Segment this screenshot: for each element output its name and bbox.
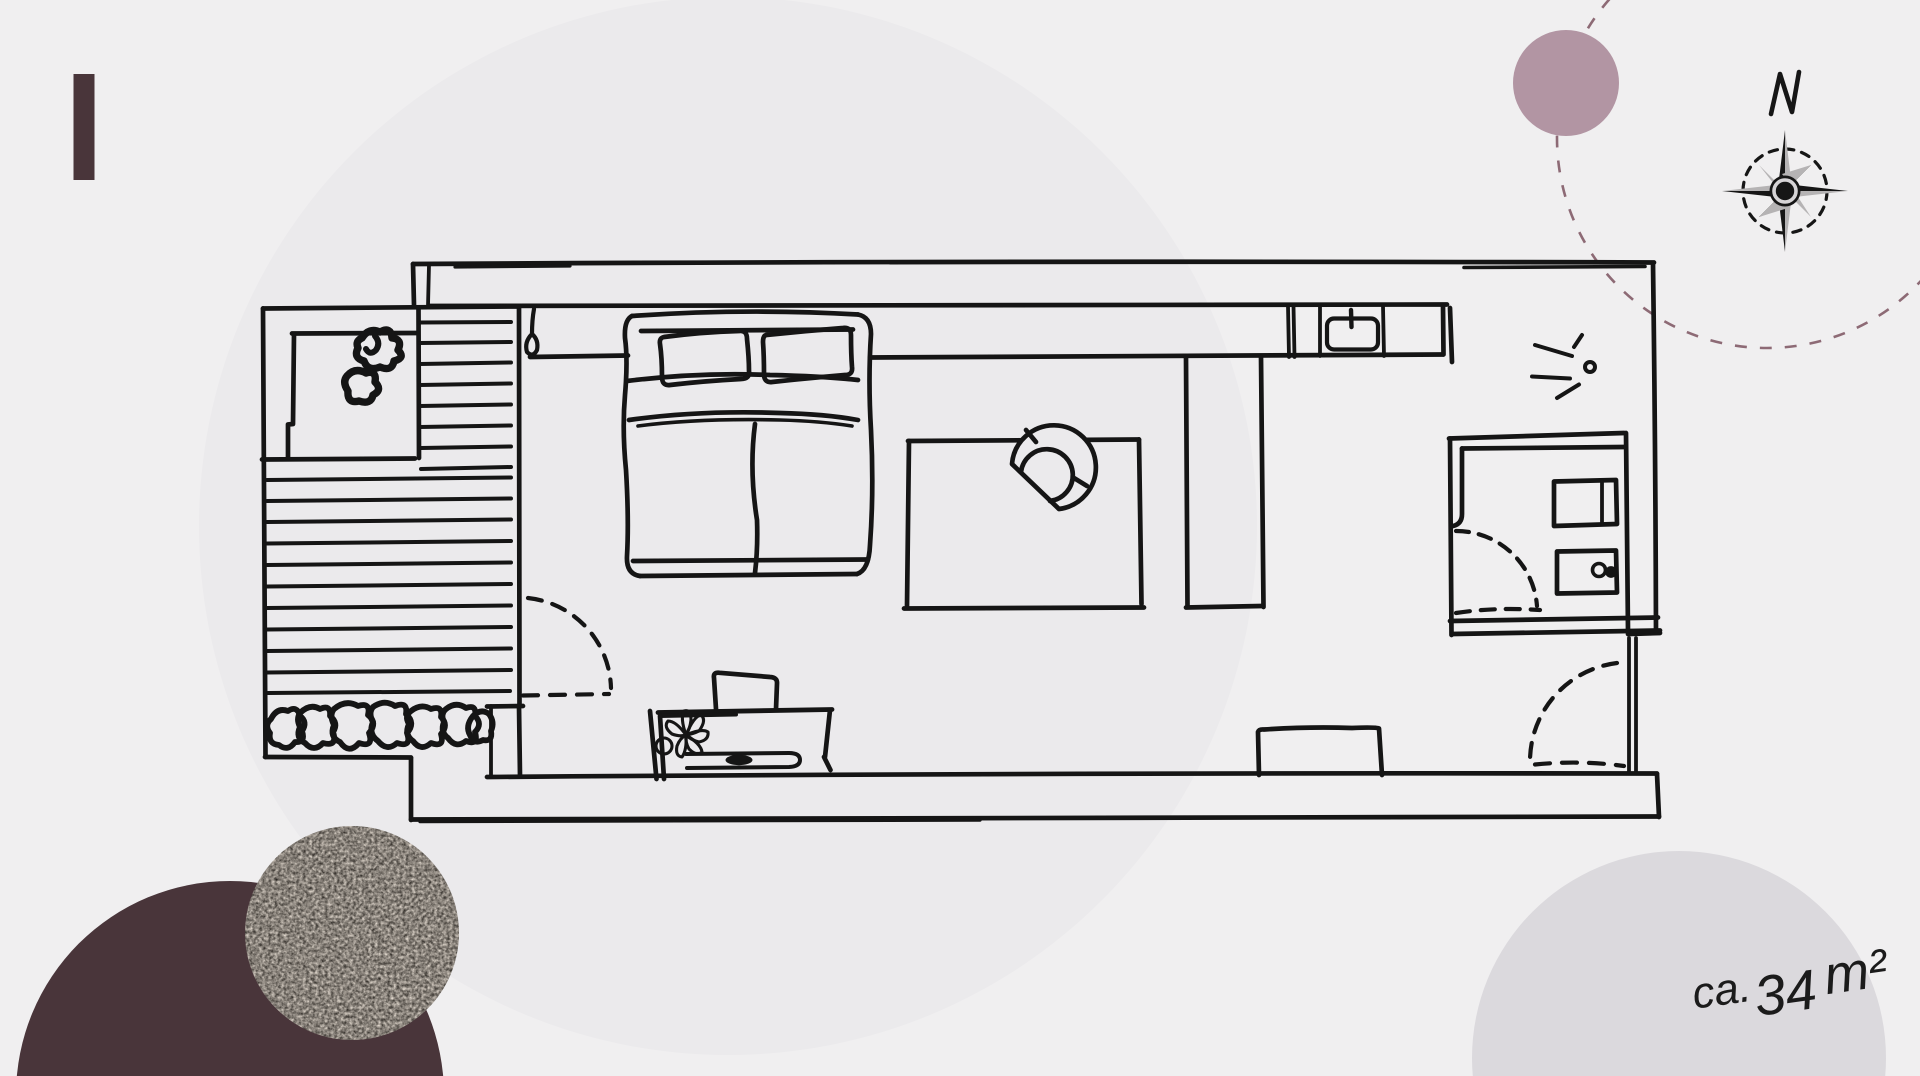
svg-text:ca.: ca. [1689, 962, 1754, 1019]
svg-text:m²: m² [1820, 938, 1893, 1006]
svg-text:34: 34 [1750, 957, 1820, 1028]
